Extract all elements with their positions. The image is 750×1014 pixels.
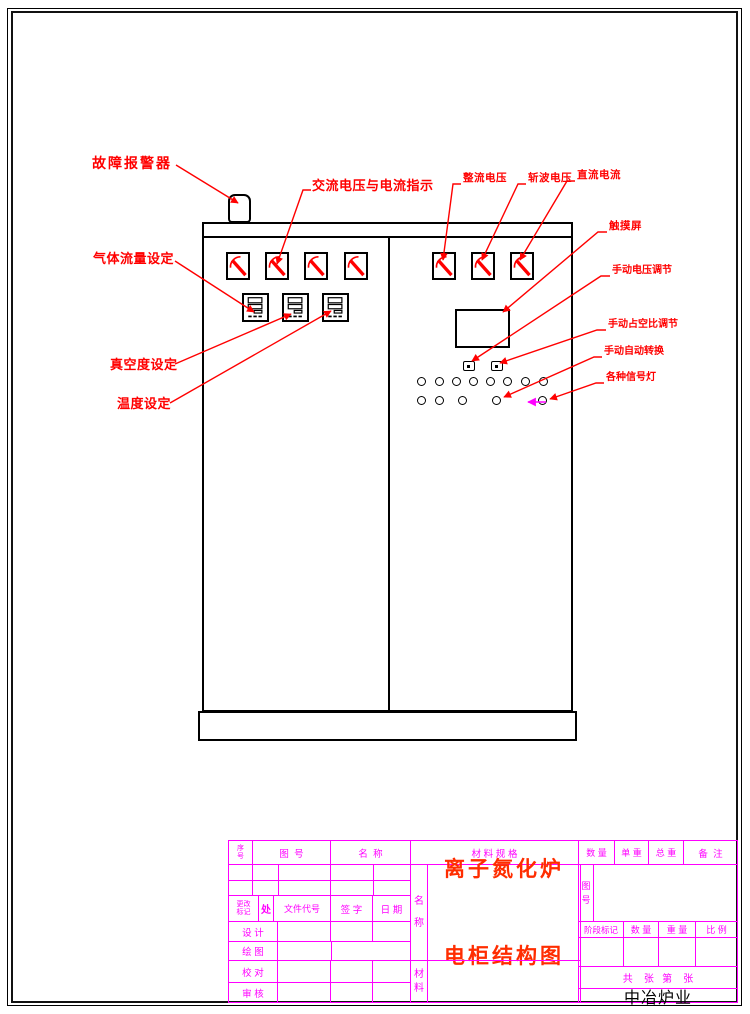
tb-cell-empty: [278, 880, 331, 896]
tb-header-drawno: 图 号: [252, 840, 331, 865]
tb-cell-empty: [372, 960, 411, 983]
drawing-sheet: 故障报警器 交流电压与电流指示 气体流量设定 真空度设定 温度设定 整流电压 斩…: [0, 0, 750, 1014]
digital-controller-icon: [322, 293, 349, 322]
tb-doc-code: 文件代号: [273, 895, 331, 922]
tb-cell-empty: [372, 921, 411, 942]
tb-header-remark: 备 注: [683, 840, 738, 865]
voltage-knob: [463, 361, 475, 371]
tb-header-total-weight: 总 重: [648, 840, 684, 865]
label-chopper-voltage: 斩波电压: [528, 173, 572, 185]
digital-controller-icon: [282, 293, 309, 322]
tb-cell-empty: [330, 864, 374, 881]
label-manual-duty: 手动占空比调节: [608, 319, 678, 330]
tb-cell-empty: [277, 960, 331, 983]
tb-stage-mark: 阶段标记: [578, 921, 624, 938]
tb-sign: 签 字: [330, 895, 373, 922]
tb-stage-scale: 比 例: [695, 921, 738, 938]
tb-cell-empty: [330, 960, 373, 983]
tb-cell-empty: [330, 921, 373, 942]
analog-meter-icon: [226, 252, 250, 280]
tb-cell-empty: [277, 941, 332, 961]
tb-cell-empty: [277, 921, 331, 942]
tb-cell-empty: [228, 880, 253, 896]
indicator-light: [539, 377, 548, 386]
cabinet-plinth: [198, 711, 577, 741]
tb-stage-qty: 数 量: [623, 921, 659, 938]
label-alarm: 故障报警器: [92, 156, 172, 171]
label-signal-lights: 各种信号灯: [606, 372, 656, 383]
indicator-light: [486, 377, 495, 386]
tb-company-cell: 中冶炉业: [578, 988, 738, 1003]
tb-stage-weight: 重 量: [658, 921, 696, 938]
label-rectifier-voltage: 整流电压: [463, 173, 507, 185]
tb-cell-empty: [578, 937, 624, 967]
tb-role-audit: 审 核: [228, 982, 278, 1003]
label-gas-flow: 气体流量设定: [93, 252, 174, 266]
label-dc-current: 直流电流: [577, 170, 621, 182]
tb-cell-empty: [278, 864, 331, 881]
tb-header-unit-weight: 单 重: [614, 840, 649, 865]
tb-cell-empty: [372, 982, 411, 1003]
tb-cell-empty: [330, 982, 373, 1003]
touch-screen: [455, 309, 510, 348]
analog-meter-icon: [304, 252, 328, 280]
indicator-light: [458, 396, 467, 405]
tb-header-qty: 数 量: [578, 840, 615, 865]
tb-cell-empty: [252, 880, 279, 896]
label-ac-meters: 交流电压与电流指示: [312, 179, 434, 193]
tb-material-value: [427, 960, 581, 1003]
indicator-light: [435, 396, 444, 405]
digital-controller-icon: [242, 293, 269, 322]
indicator-light: [417, 377, 426, 386]
tb-material-label: 材料: [410, 960, 428, 1003]
tb-role-design: 设 计: [228, 921, 278, 942]
tb-cell-empty: [373, 880, 411, 896]
tb-header-seq: 序号: [228, 840, 253, 865]
tb-cell-empty: [623, 937, 659, 967]
label-manual-voltage: 手动电压调节: [612, 265, 672, 276]
indicator-light: [492, 396, 501, 405]
label-vacuum: 真空度设定: [110, 358, 178, 372]
tb-cell-empty: [330, 880, 374, 896]
tb-cell-empty: [277, 982, 331, 1003]
tb-cell-empty: [373, 864, 411, 881]
tb-header-name: 名 称: [330, 840, 411, 865]
drawing-title-line1: 离子氮化炉: [444, 855, 564, 884]
label-manual-auto: 手动自动转换: [604, 346, 664, 357]
tb-role-check: 校 对: [228, 960, 278, 983]
indicator-light: [521, 377, 530, 386]
indicator-light: [435, 377, 444, 386]
tb-date: 日 期: [372, 895, 411, 922]
tb-drawno-value: [593, 864, 738, 922]
indicator-light: [503, 377, 512, 386]
indicator-light: [417, 396, 426, 405]
indicator-light: [469, 377, 478, 386]
tb-role-draw: 绘 图: [228, 941, 278, 961]
analog-meter-icon: [510, 252, 534, 280]
analog-meter-icon: [344, 252, 368, 280]
tb-cell-empty: [228, 864, 253, 881]
label-touch-screen: 触摸屏: [609, 221, 642, 233]
tb-change-count: 处: [258, 895, 274, 922]
analog-meter-icon: [471, 252, 495, 280]
alarm-device: [228, 194, 251, 223]
tb-drawing-title: 离子氮化炉 电柜结构图: [427, 864, 581, 961]
analog-meter-icon: [432, 252, 456, 280]
tb-cell-empty: [695, 937, 738, 967]
company-name: 中冶炉业: [624, 984, 692, 1008]
tb-name-label: 名称: [410, 864, 428, 961]
tb-change-mark: 更改标记: [228, 895, 259, 922]
cabinet-right-door: [388, 236, 573, 712]
tb-cell-empty: [331, 941, 411, 961]
label-temperature: 温度设定: [117, 397, 171, 411]
analog-meter-icon: [265, 252, 289, 280]
indicator-light: [452, 377, 461, 386]
indicator-light: [538, 396, 547, 405]
tb-cell-empty: [658, 937, 696, 967]
duty-cycle-knob: [491, 361, 503, 371]
tb-drawno-label: 图号: [578, 864, 594, 922]
tb-cell-empty: [252, 864, 279, 881]
